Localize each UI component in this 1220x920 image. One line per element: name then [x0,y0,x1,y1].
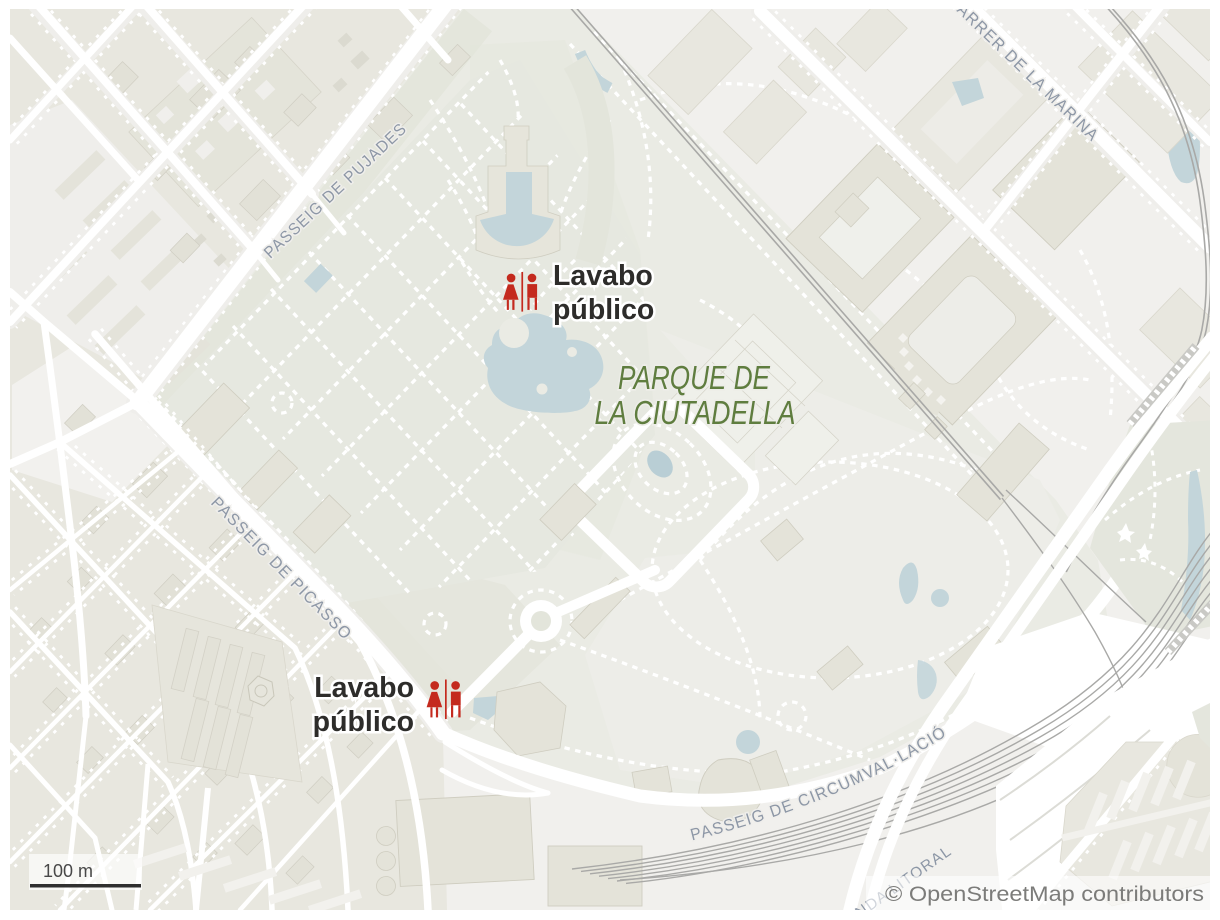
svg-text:Lavabo: Lavabo [553,260,653,292]
svg-text:Lavabo: Lavabo [314,672,414,704]
svg-text:© OpenStreetMap contributors: © OpenStreetMap contributors [885,883,1204,906]
svg-text:LA CIUTADELLA: LA CIUTADELLA [595,395,796,432]
svg-text:público: público [553,294,654,326]
svg-text:100 m: 100 m [43,861,93,881]
svg-text:PARQUE DE: PARQUE DE [618,360,771,397]
svg-text:público: público [313,706,414,738]
